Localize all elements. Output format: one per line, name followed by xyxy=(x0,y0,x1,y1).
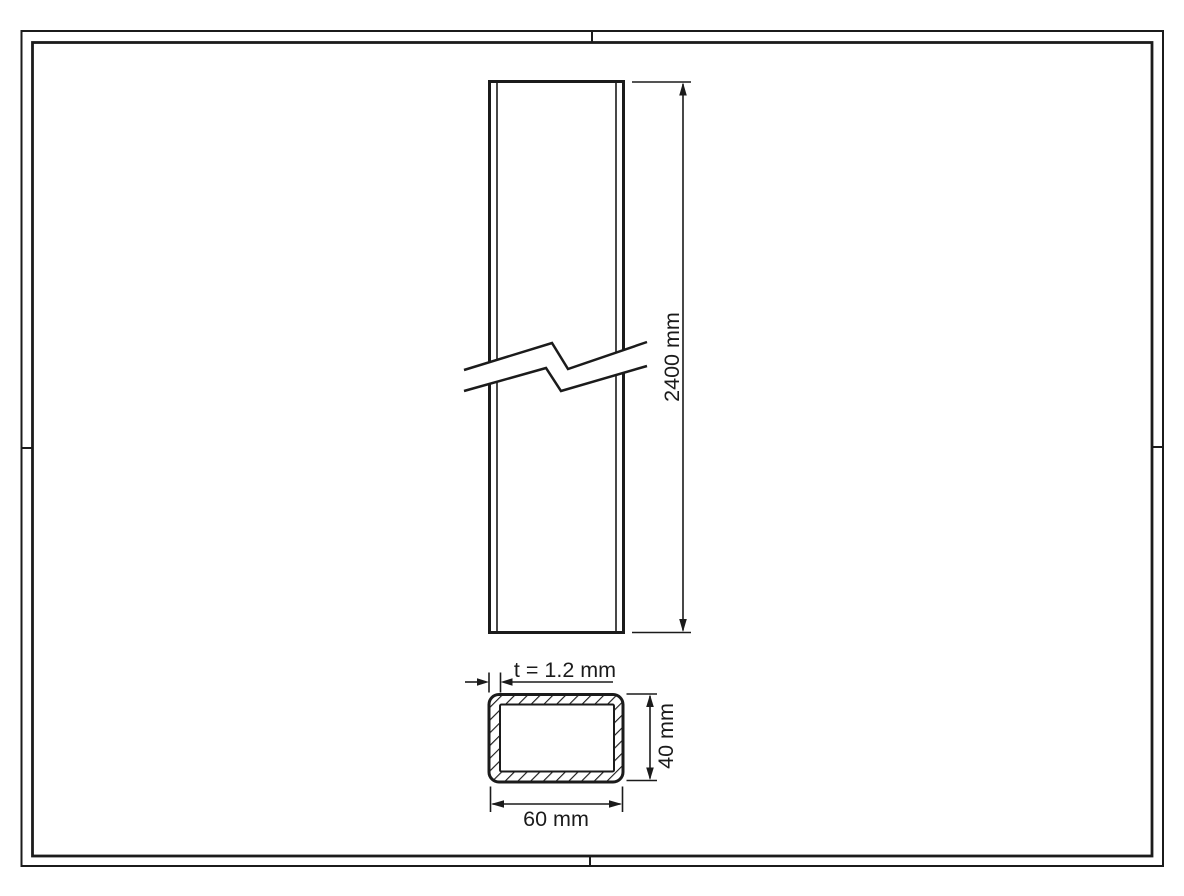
thickness-dimension: t = 1.2 mm xyxy=(465,658,616,693)
width-arrow-right xyxy=(609,800,622,808)
length-arrow-bottom xyxy=(679,619,687,632)
cross-section-view xyxy=(489,695,623,783)
length-label: 2400 mm xyxy=(660,312,684,402)
section-inner-profile xyxy=(500,705,614,772)
length-arrow-top xyxy=(679,83,687,96)
thickness-arrow-left xyxy=(477,678,489,685)
drawing-sheet: 2400 mm t = 1.2 mm 40 mm xyxy=(0,0,1184,896)
technical-drawing: 2400 mm t = 1.2 mm 40 mm xyxy=(0,0,1184,896)
tube-elevation-view xyxy=(464,82,647,633)
width-arrow-left xyxy=(491,800,504,808)
height-label: 40 mm xyxy=(654,703,678,769)
thickness-label: t = 1.2 mm xyxy=(514,658,616,682)
width-dimension: 60 mm xyxy=(491,787,623,832)
width-label: 60 mm xyxy=(523,807,589,831)
height-arrow-bottom xyxy=(646,768,654,781)
thickness-arrow-right xyxy=(501,678,513,685)
height-arrow-top xyxy=(646,695,654,708)
height-dimension: 40 mm xyxy=(627,694,679,781)
